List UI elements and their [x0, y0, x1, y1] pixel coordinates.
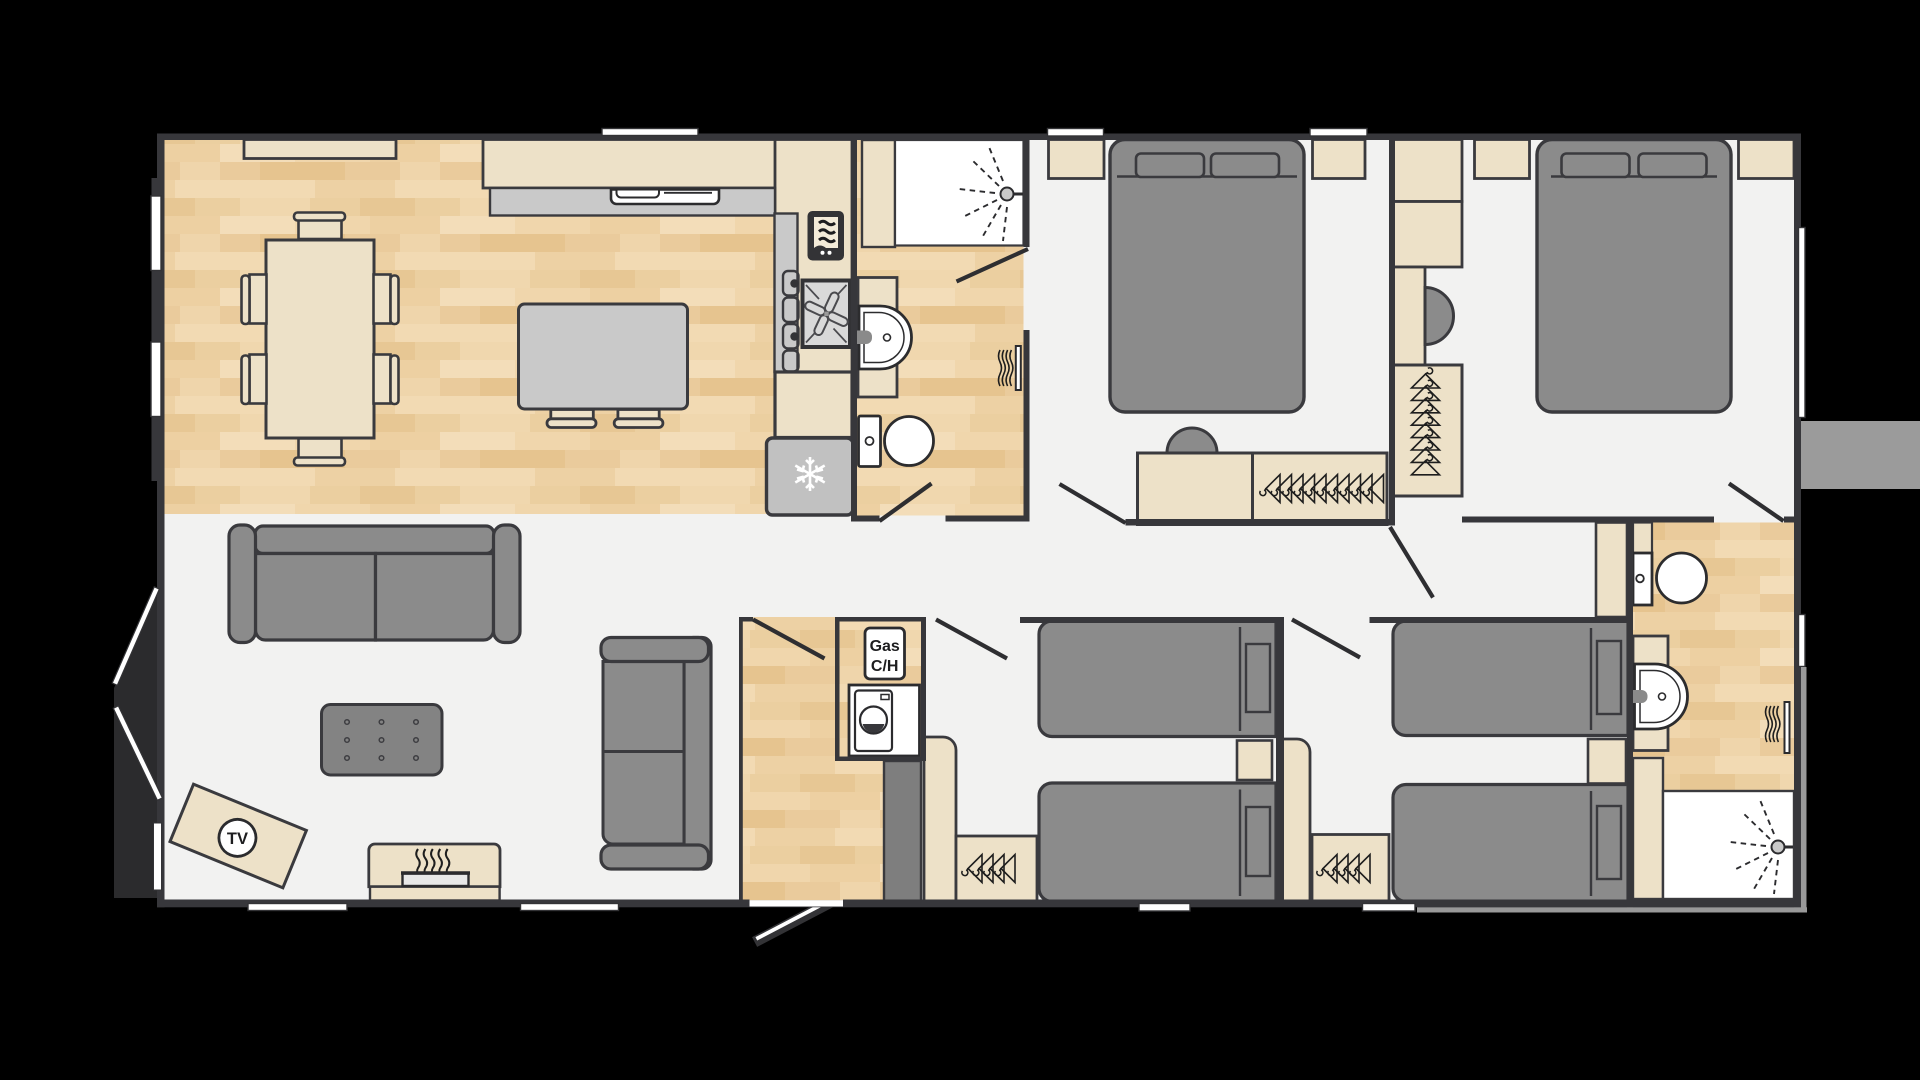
svg-text:Gas: Gas [870, 638, 900, 655]
svg-text:C/H: C/H [871, 658, 899, 675]
svg-text:TV: TV [227, 830, 248, 848]
